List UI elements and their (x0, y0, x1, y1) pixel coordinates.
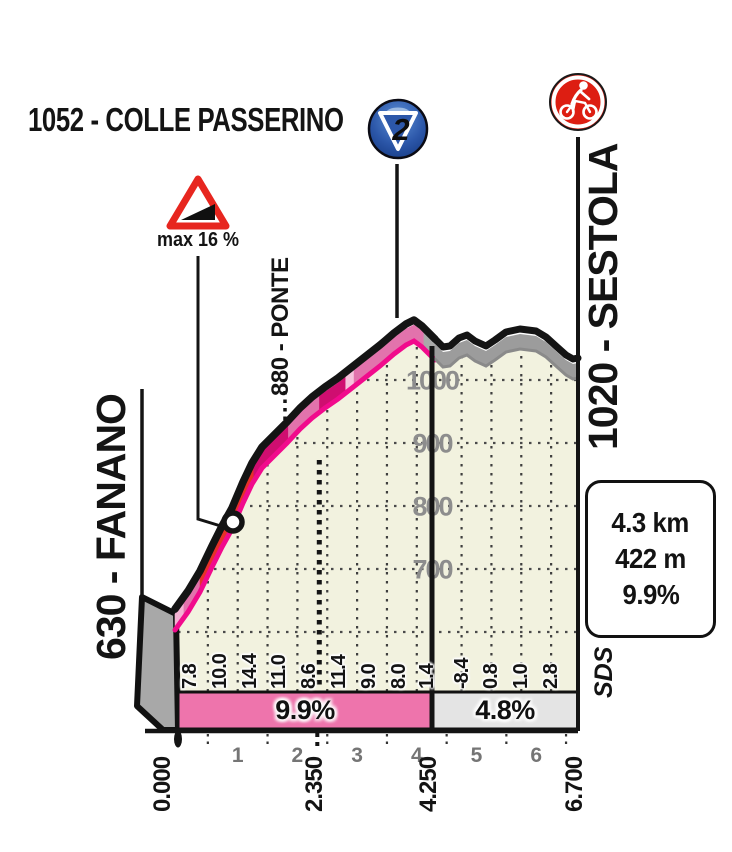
category-2-badge-icon: 2 (366, 97, 430, 161)
km-number-1: 1 (232, 744, 244, 767)
sds-logo: SDS (590, 642, 624, 698)
gradient-value-11: 1.0 (511, 633, 531, 689)
climb-average-gradient: 9.9% (622, 579, 679, 611)
gradient-value-2: 14.4 (240, 633, 260, 689)
km-label-4.250: 4.250 (416, 750, 442, 812)
climb-summary-box: 4.3 km 422 m 9.9% (585, 480, 716, 638)
start-place-label: 630 - FANANO (88, 388, 134, 660)
category-number: 2 (391, 112, 409, 147)
km-number-6: 6 (530, 744, 542, 767)
sector-gradient-label-2: 4.8% (450, 695, 560, 726)
gradient-value-12: 2.8 (541, 633, 561, 689)
approach-road-wedge (137, 597, 178, 730)
gradient-value-8: 1.4 (417, 633, 437, 689)
km0-axis-dot (174, 731, 182, 748)
max-gradient-pointer-line (198, 256, 224, 527)
steep-gradient-warning-icon (166, 174, 230, 232)
km-label-2.350: 2.350 (302, 750, 328, 812)
km-number-5: 5 (471, 744, 483, 767)
gradient-value-9: -8.4 (452, 633, 472, 689)
gradient-value-1: 10.0 (210, 633, 230, 689)
km-number-3: 3 (351, 744, 363, 767)
climb-elevation-gain: 422 m (615, 543, 686, 575)
max-gradient-point-marker (224, 513, 242, 531)
max-gradient-label: max 16 % (137, 229, 259, 252)
climb-profile-infographic: 1000900800700123456 1052 - COLLE PASSERI… (0, 0, 732, 852)
gradient-value-6: 9.0 (359, 633, 379, 689)
gradient-value-5: 11.4 (329, 633, 349, 689)
climb-distance: 4.3 km (612, 507, 689, 539)
sector-gradient-label-1: 9.9% (250, 695, 360, 726)
km-label-6.700: 6.700 (562, 750, 588, 812)
summit-title: 1052 - COLLE PASSERINO (28, 101, 344, 139)
climber-finish-icon (548, 72, 608, 132)
km-label-0.000: 0.000 (150, 750, 176, 812)
gradient-value-7: 8.0 (389, 633, 409, 689)
gradient-value-10: 0.8 (481, 633, 501, 689)
gradient-value-4: 8.6 (299, 633, 319, 689)
intermediate-place-label: 880 - PONTE (267, 246, 295, 396)
finish-place-label: 1020 - SESTOLA (580, 146, 626, 450)
gradient-value-0: 7.8 (180, 633, 200, 689)
gradient-value-3: 11.0 (269, 633, 289, 689)
